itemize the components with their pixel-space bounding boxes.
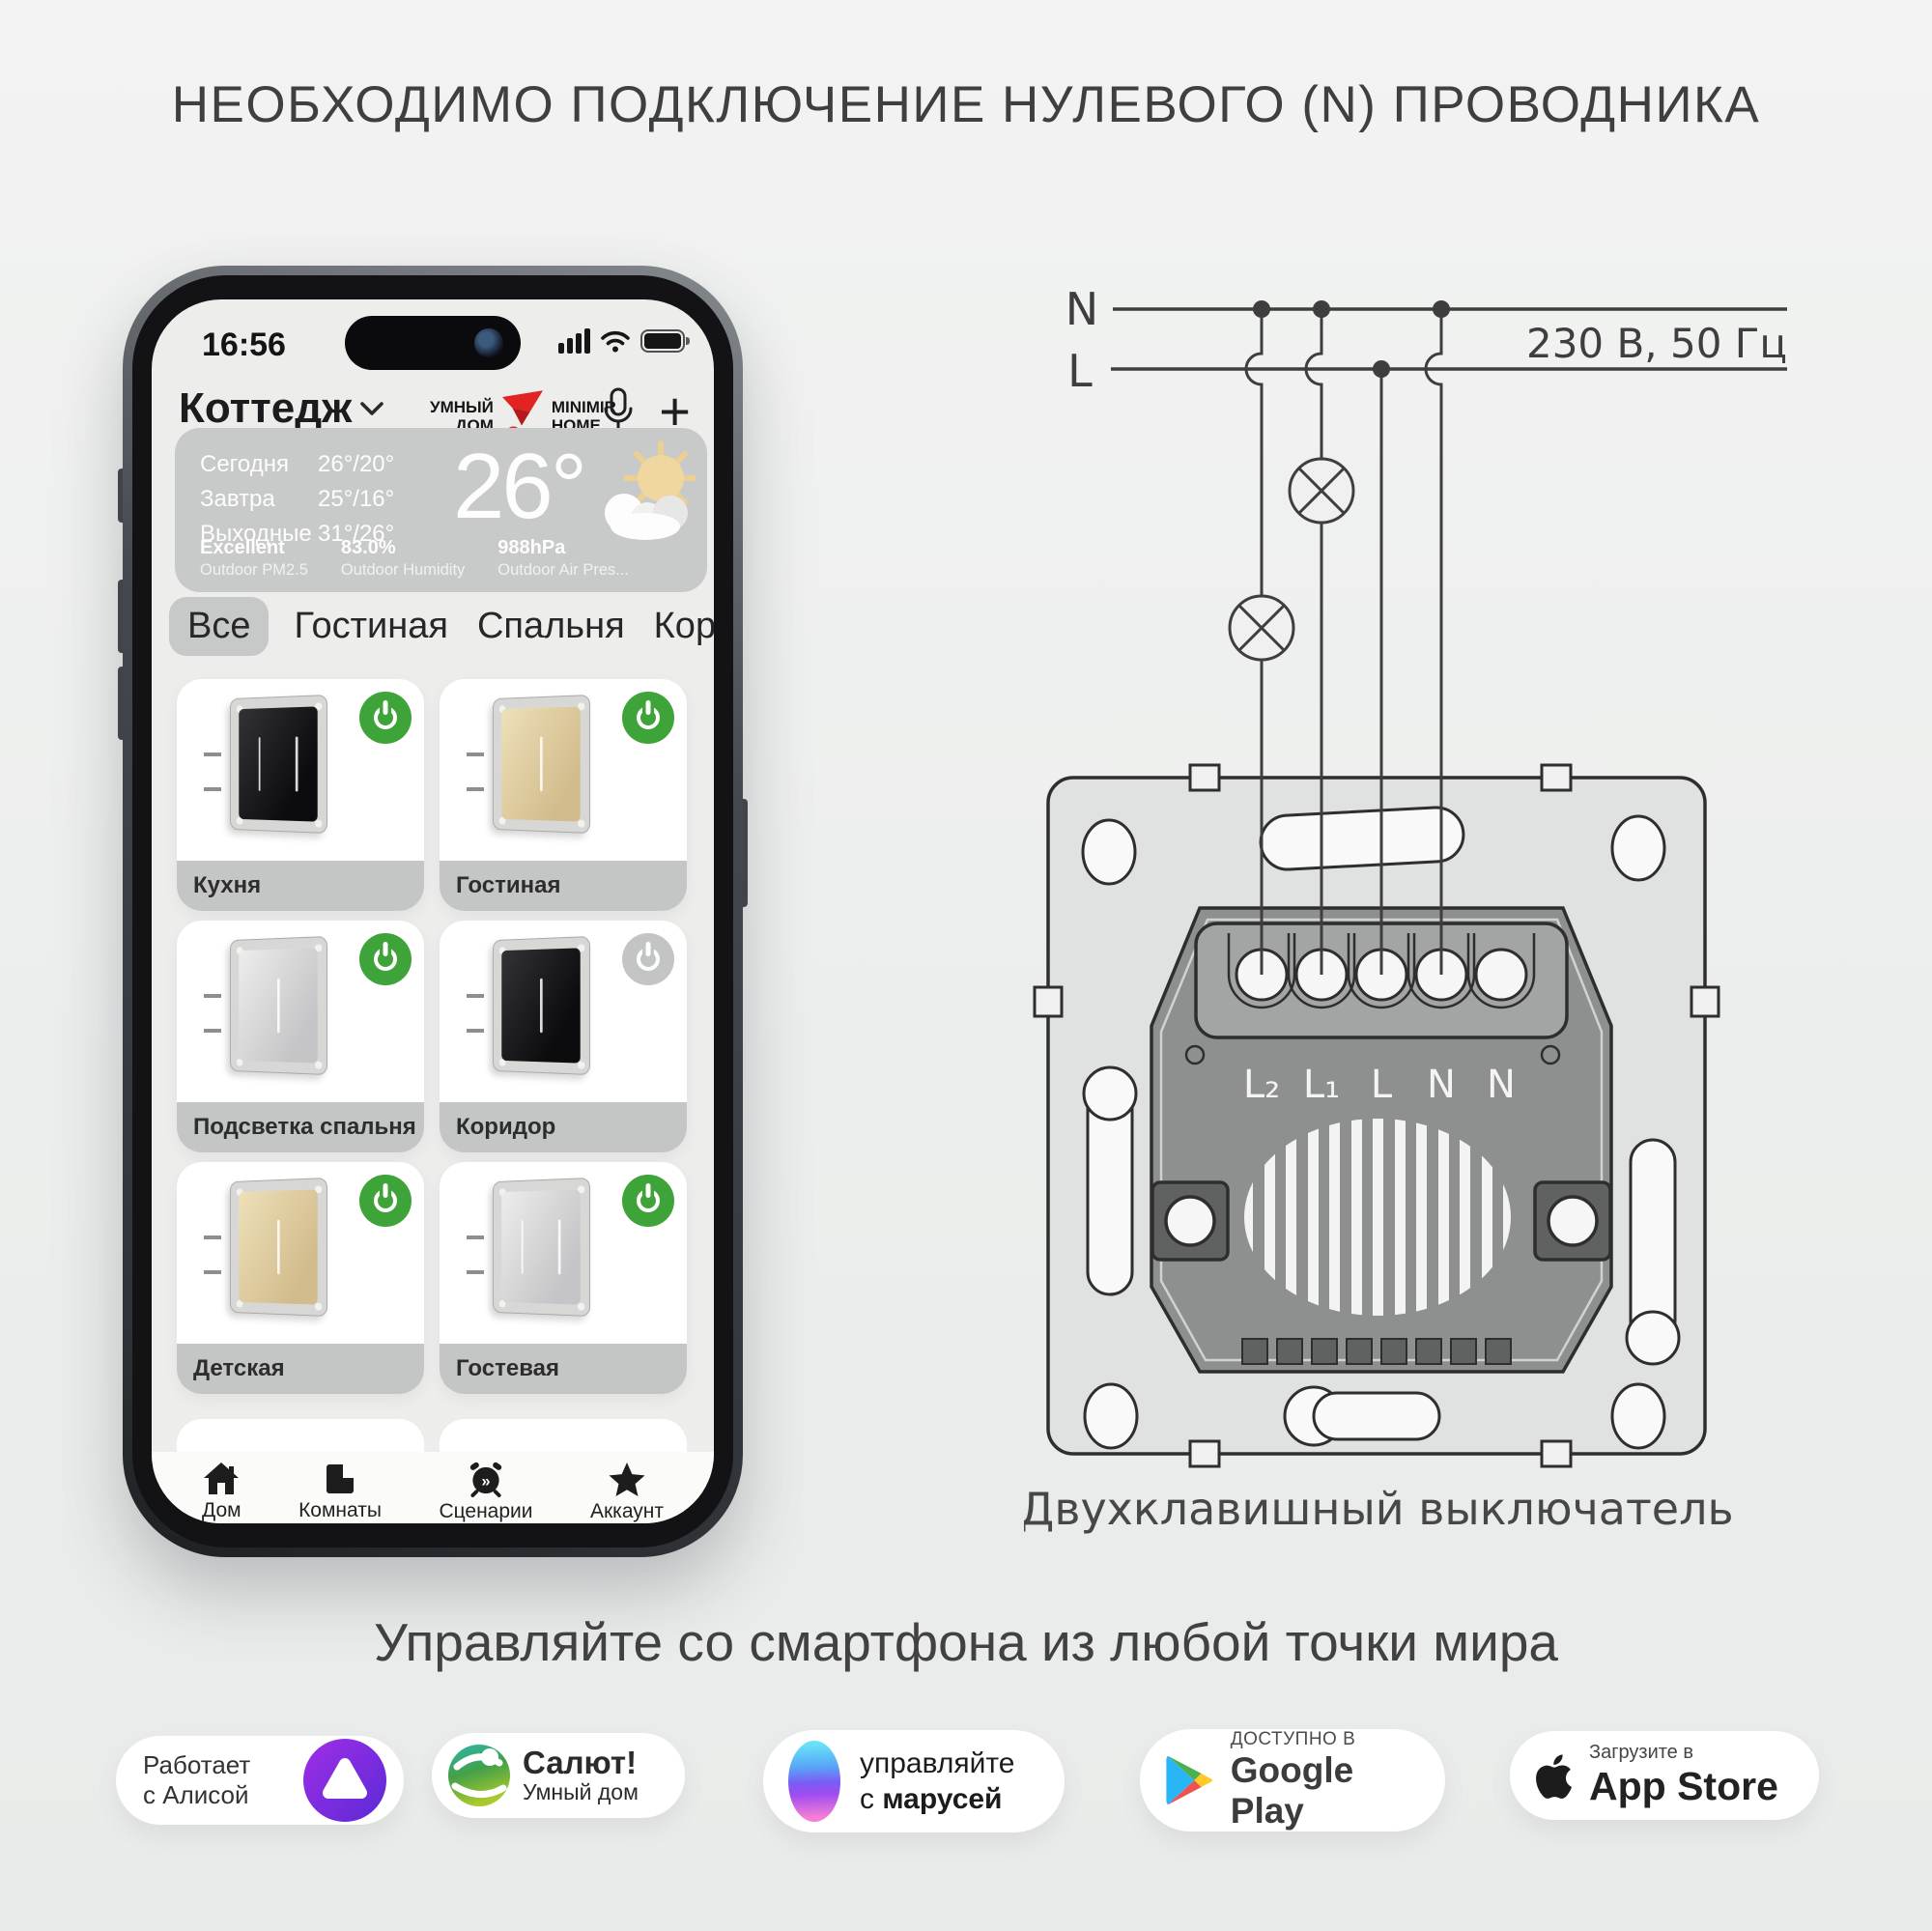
- switch-image: [185, 689, 358, 851]
- device-name: Детская: [177, 1344, 424, 1394]
- label-neutral: N: [1065, 283, 1098, 335]
- star-icon: [608, 1462, 646, 1497]
- page: НЕОБХОДИМО ПОДКЛЮЧЕНИЕ НУЛЕВОГО (N) ПРОВ…: [0, 0, 1932, 1931]
- bottom-nav: Дом Комнаты »: [152, 1452, 714, 1523]
- rooms-icon: [323, 1462, 357, 1496]
- power-toggle[interactable]: [622, 692, 674, 744]
- device-name: Подсветка спальня: [177, 1102, 424, 1152]
- chevron-down-icon: [359, 401, 384, 416]
- svg-text:»: »: [481, 1471, 490, 1490]
- badge-google-play[interactable]: ДОСТУПНО В Google Play: [1140, 1729, 1445, 1832]
- marusia-line2: с марусей: [860, 1781, 1014, 1817]
- terminal-l1: L₁: [1303, 1063, 1340, 1107]
- badge-salut[interactable]: Салют! Умный дом: [432, 1733, 685, 1818]
- alisa-line2: с Алисой: [143, 1780, 250, 1810]
- camera-icon: [474, 328, 503, 357]
- nav-label: Комнаты: [298, 1499, 382, 1522]
- tab-living-room[interactable]: Гостиная: [290, 597, 452, 656]
- label-line: L: [1067, 345, 1093, 397]
- switch-image: [185, 930, 358, 1093]
- device-card-bedroom-light[interactable]: Подсветка спальня: [177, 921, 424, 1152]
- device-name: Гостевая: [440, 1344, 687, 1394]
- salut-subtitle: Умный дом: [523, 1779, 639, 1805]
- nav-item-home[interactable]: Дом: [202, 1462, 241, 1523]
- power-icon: [374, 706, 397, 729]
- dynamic-island: [345, 316, 521, 370]
- stat-value: 83.0%: [341, 537, 465, 559]
- junction-dots: [1253, 300, 1450, 378]
- stat-label: Outdoor Humidity: [341, 561, 465, 580]
- current-temperature: 26°: [453, 434, 584, 540]
- nav-item-account[interactable]: Аккаунт: [590, 1462, 664, 1523]
- forecast-label: Завтра: [200, 482, 318, 517]
- battery-icon: [640, 329, 685, 353]
- stat-label: Outdoor PM2.5: [200, 561, 308, 580]
- terminal-l2: L₂: [1243, 1063, 1280, 1107]
- switch-image: [185, 1172, 358, 1334]
- terminal-n2: N: [1487, 1063, 1516, 1107]
- nav-label: Сценарии: [439, 1500, 532, 1523]
- scenarios-icon: »: [467, 1462, 505, 1497]
- device-card-corridor[interactable]: Коридор: [440, 921, 687, 1152]
- appstore-small-text: Загрузите в: [1589, 1742, 1778, 1764]
- home-icon: [202, 1462, 241, 1496]
- power-icon: [374, 1189, 397, 1212]
- terminal-n1: N: [1427, 1063, 1456, 1107]
- marusia-line1: управляйте: [860, 1746, 1014, 1781]
- google-play-icon: [1163, 1749, 1215, 1811]
- diagram-caption: Двухклавишный выключатель: [1024, 1483, 1734, 1535]
- voltage-label: 230 В, 50 Гц: [1526, 320, 1787, 367]
- power-icon: [637, 1189, 660, 1212]
- room-tabs: Все Гостиная Спальня Коридор: [169, 597, 714, 656]
- tab-bedroom[interactable]: Спальня: [473, 597, 629, 656]
- forecast-label: Сегодня: [200, 447, 318, 482]
- salut-title: Салют!: [523, 1746, 639, 1779]
- home-selector[interactable]: Коттедж: [179, 384, 384, 433]
- weather-forecast: Сегодня26°/20° Завтра25°/16° Выходные31°…: [200, 447, 394, 552]
- nav-label: Дом: [202, 1499, 241, 1522]
- nav-item-scenarios[interactable]: » Сценарии: [439, 1462, 532, 1523]
- switch-image: [447, 930, 621, 1093]
- apple-icon: [1531, 1748, 1576, 1803]
- forecast-temp: 26°/20°: [318, 447, 394, 482]
- gplay-small-text: ДОСТУПНО В: [1231, 1729, 1422, 1750]
- power-icon: [637, 706, 660, 729]
- device-card-living-room[interactable]: Гостиная: [440, 679, 687, 911]
- wiring-diagram: L₂ L₁ L N N N L 230 В, 50 Г: [1024, 270, 1835, 1546]
- stat-label: Outdoor Air Pres...: [497, 561, 629, 580]
- switch-mechanism: [1035, 765, 1719, 1466]
- status-time: 16:56: [202, 327, 286, 364]
- power-icon: [637, 948, 660, 971]
- status-icons: [558, 328, 685, 354]
- power-toggle[interactable]: [359, 1175, 412, 1227]
- device-card-kids-room[interactable]: Детская: [177, 1162, 424, 1394]
- gplay-big-text: Google Play: [1231, 1750, 1422, 1832]
- tab-all[interactable]: Все: [169, 597, 269, 656]
- home-name: Коттедж: [179, 384, 352, 433]
- terminal-l: L: [1371, 1063, 1393, 1107]
- stat-value: Excellent: [200, 537, 308, 559]
- power-icon: [374, 948, 397, 971]
- alisa-line1: Работает: [143, 1750, 250, 1780]
- appstore-big-text: App Store: [1589, 1764, 1778, 1809]
- power-toggle[interactable]: [359, 933, 412, 985]
- bottom-headline: Управляйте со смартфона из любой точки м…: [0, 1611, 1932, 1673]
- forecast-temp: 25°/16°: [318, 482, 394, 517]
- badge-app-store[interactable]: Загрузите в App Store: [1510, 1731, 1819, 1820]
- weather-stats: ExcellentOutdoor PM2.5 83.0%Outdoor Humi…: [200, 537, 662, 580]
- switch-image: [447, 1172, 621, 1334]
- switch-image: [447, 689, 621, 851]
- device-name: Гостиная: [440, 861, 687, 911]
- badge-alisa[interactable]: Работает с Алисой: [116, 1736, 404, 1825]
- app-screen: 16:56 Коттедж: [152, 299, 714, 1523]
- wifi-icon: [599, 328, 632, 354]
- nav-label: Аккаунт: [590, 1500, 664, 1523]
- power-toggle[interactable]: [622, 933, 674, 985]
- badge-marusia[interactable]: управляйте с марусей: [763, 1730, 1065, 1832]
- lamp-icons: [1230, 459, 1353, 660]
- power-toggle[interactable]: [622, 1175, 674, 1227]
- phone-mockup: 16:56 Коттедж: [123, 266, 743, 1557]
- nav-item-rooms[interactable]: Комнаты: [298, 1462, 382, 1523]
- stat-value: 988hPa: [497, 537, 629, 559]
- device-name: Коридор: [440, 1102, 687, 1152]
- tab-corridor[interactable]: Коридор: [650, 597, 714, 656]
- salut-icon: [447, 1744, 511, 1807]
- device-card-kitchen[interactable]: Кухня: [177, 679, 424, 911]
- page-title: НЕОБХОДИМО ПОДКЛЮЧЕНИЕ НУЛЕВОГО (N) ПРОВ…: [0, 75, 1932, 134]
- signal-icon: [558, 328, 590, 354]
- weather-widget[interactable]: Сегодня26°/20° Завтра25°/16° Выходные31°…: [175, 428, 707, 592]
- sun-clouds-icon: [591, 440, 696, 544]
- device-name: Кухня: [177, 861, 424, 911]
- alisa-icon: [303, 1739, 386, 1822]
- power-toggle[interactable]: [359, 692, 412, 744]
- marusia-icon: [788, 1741, 840, 1822]
- brand-text-1: УМНЫЙ: [430, 398, 494, 416]
- device-card-guest-room[interactable]: Гостевая: [440, 1162, 687, 1394]
